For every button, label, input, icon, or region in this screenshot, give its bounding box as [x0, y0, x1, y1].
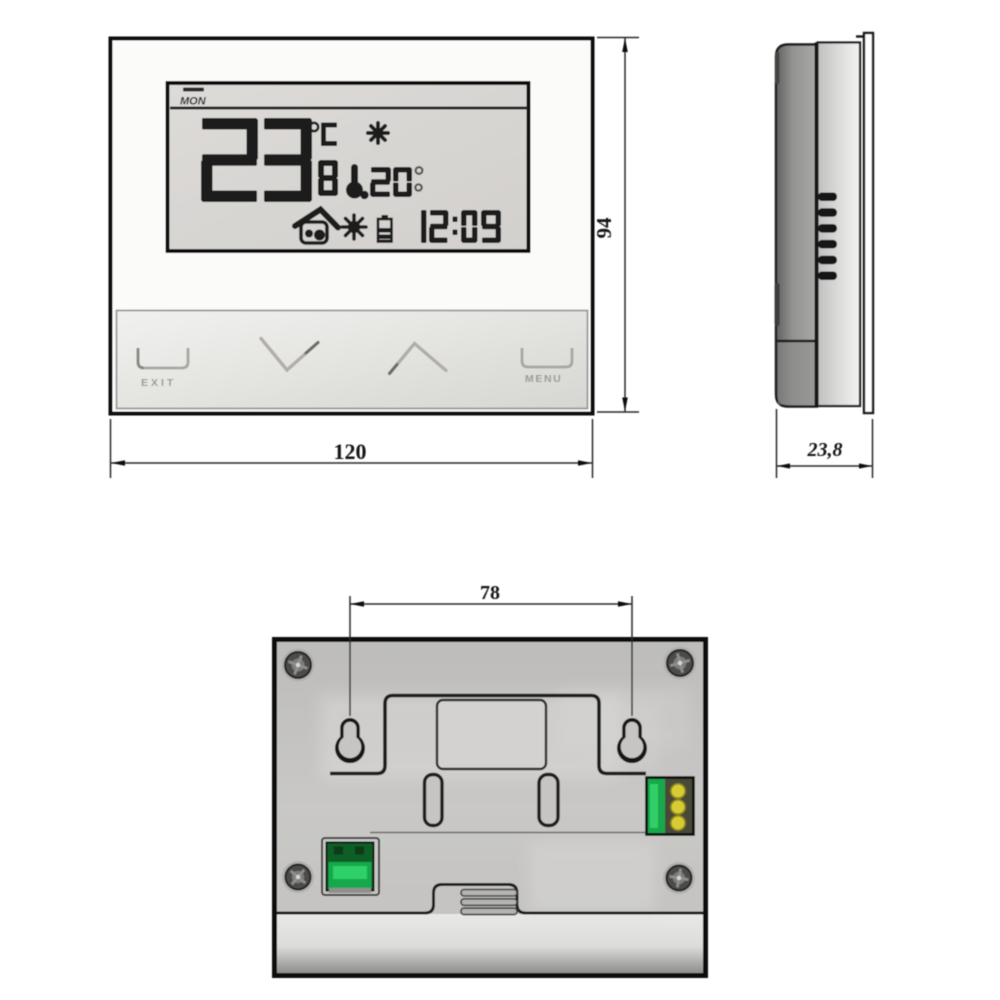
svg-text:23,8: 23,8 — [807, 439, 843, 461]
svg-text:MON: MON — [180, 96, 207, 108]
svg-text:94: 94 — [592, 217, 616, 239]
svg-text:MENU: MENU — [525, 373, 562, 385]
svg-text:120: 120 — [334, 439, 367, 464]
svg-text:78: 78 — [480, 582, 500, 604]
svg-text:EXIT: EXIT — [141, 377, 176, 389]
